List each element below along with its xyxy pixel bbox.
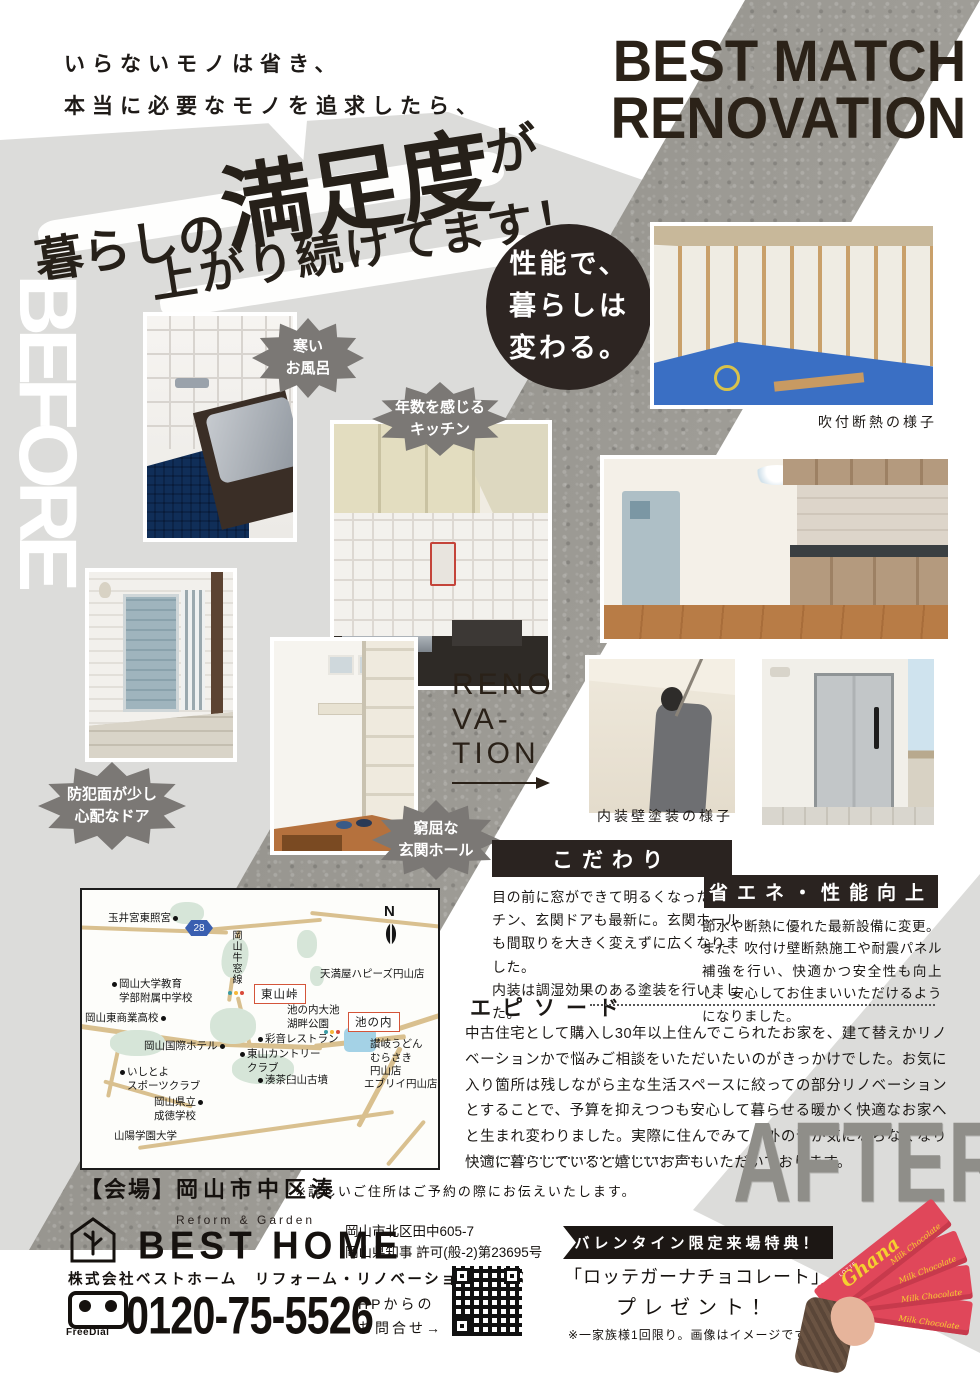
renovation-arrow-icon (452, 782, 548, 784)
map-dot (161, 1016, 166, 1021)
map-label: 山陽学園大学 (114, 1130, 177, 1144)
map-road-name: 岡山牛窓線 (228, 930, 243, 985)
valentine-note: ※一家族様1回限り。画像はイメージです。 (568, 1326, 819, 1343)
map-label: 岡山県立 成徳学校 (154, 1096, 203, 1123)
venue-note: ※詳しいご住所はご予約の際にお伝えいたします。 (295, 1181, 637, 1200)
section-title-shoene: 省エネ・性能向上 (704, 875, 938, 908)
phone-number: 0120-75-5526 (126, 1284, 373, 1346)
photo-part (211, 572, 223, 732)
photo-kitchen-after (600, 455, 952, 643)
company-address: 岡山市北区田中605-7 岡山県知事 許可(般-2)第23695号 (345, 1222, 542, 1264)
renovation-label: RENO VA- TION (452, 668, 555, 772)
after-label: AFTER (733, 1096, 980, 1229)
photo-part (589, 659, 735, 695)
photo-part (649, 701, 713, 815)
valentine-banner: バレンタイン限定来場特典！ (563, 1226, 833, 1259)
valentine-gift-line1: 「ロッテガーナチョコレート」 (552, 1263, 842, 1289)
valentine-gift-line2: プレゼント！ (552, 1291, 842, 1320)
section-body-shoene: 節水や断熱に優れた最新設備に変更。 また、吹付け壁断熱施工や耐震パネル補強を行い… (702, 916, 942, 1028)
photo-part (430, 542, 456, 586)
map-label: 彩音レストラン (258, 1033, 339, 1047)
map-label: 玉井宮東照宮 (108, 912, 178, 926)
photo-part (123, 594, 179, 712)
map-dot (220, 1044, 225, 1049)
map-label: いしとよ スポーツクラブ (120, 1066, 200, 1093)
map-dot (258, 1078, 263, 1083)
photo-part (181, 590, 205, 710)
before-label: BEFORE (4, 274, 91, 584)
performance-circle-badge: 性能で、 暮らしは 変わる。 (486, 224, 652, 390)
map-boxed-label-ikenouchi: 池の内 (348, 1012, 400, 1032)
map-boxed-label-higashiyama: 東山峠 (254, 984, 306, 1004)
photo-part (282, 835, 342, 851)
map-dot (120, 1070, 125, 1075)
photo-part (874, 707, 879, 749)
map-label: 東山カントリー クラブ (240, 1048, 321, 1075)
map-dot (258, 1037, 263, 1042)
section-title-kodawari: こだわり (492, 840, 732, 877)
map-label: 湊茶臼山古墳 (258, 1074, 328, 1088)
traffic-signal-icon (324, 1030, 340, 1034)
qr-code (452, 1266, 522, 1336)
map-road (397, 1009, 440, 1031)
photo-part (356, 819, 372, 827)
photo-part (797, 485, 948, 545)
photo-part (604, 605, 948, 639)
photo-part (714, 365, 740, 391)
map-label: 讃岐うどん むらさき 円山店 (370, 1038, 423, 1079)
compass-icon (380, 922, 402, 946)
caption-insulation: 吹付断熱の様子 (650, 412, 937, 432)
besthome-logo-icon (68, 1216, 118, 1264)
map-green-area (210, 1008, 256, 1044)
compass-label: N (384, 902, 395, 922)
map-dot (173, 916, 178, 921)
photo-wall-painting-work (585, 655, 739, 817)
map-label: 岡山東商業高校 (85, 1012, 166, 1026)
map-dot (240, 1052, 245, 1057)
photo-part (654, 246, 933, 366)
map-label: 天満屋ハピーズ円山店 (320, 968, 424, 982)
photo-part (790, 545, 948, 557)
map-label: 池の内大池 湖畔公園 (287, 1004, 340, 1031)
freedial-icon (68, 1291, 128, 1329)
section-title-episode: エピソード (470, 992, 630, 1022)
dotted-divider-bottom (467, 1157, 702, 1159)
photo-part (908, 659, 934, 825)
flyer-page: いらないモノは省き、 本当に必要なモノを追求したら、 暮らしの満足度が 上がり続… (0, 0, 980, 1375)
page-title: BEST MATCH RENOVATION (611, 34, 966, 148)
map-green-area (297, 930, 317, 958)
hp-contact-note: HPからの お問合せ→ (358, 1293, 443, 1341)
photo-part (175, 378, 209, 388)
map-label: 岡山国際ホテル (144, 1040, 225, 1054)
caption-painting: 内装壁塗装の様子 (580, 806, 750, 826)
photo-part (318, 703, 366, 715)
photo-part (328, 655, 354, 675)
photo-part (630, 501, 650, 519)
map-road (310, 911, 440, 929)
photo-entrance-door-after (758, 655, 938, 829)
map-road (386, 1119, 426, 1166)
dotted-divider-top (590, 1004, 935, 1006)
map-label: エブリイ円山店 (364, 1078, 438, 1092)
freedial-label: FreeDial (66, 1327, 109, 1338)
photo-part (762, 807, 934, 825)
photo-entrance-door-before (85, 568, 237, 762)
photo-part (336, 821, 352, 829)
photo-part (89, 712, 233, 758)
intro-line1: いらないモノは省き、 (64, 44, 484, 86)
map-dot (112, 982, 117, 987)
map-dot (198, 1100, 203, 1105)
photo-part (770, 667, 790, 677)
photo-insulation-work (650, 222, 937, 409)
access-map: 28 岡山牛窓線 玉井宮東照宮 岡山大学教育 学部附属中学校 岡山東商業高校 天… (80, 888, 440, 1170)
traffic-signal-icon (228, 991, 244, 995)
photo-part (814, 673, 894, 811)
photo-part (452, 620, 522, 646)
photo-part (99, 582, 111, 598)
map-label: 岡山大学教育 学部附属中学校 (112, 978, 193, 1005)
photo-part (783, 459, 948, 485)
